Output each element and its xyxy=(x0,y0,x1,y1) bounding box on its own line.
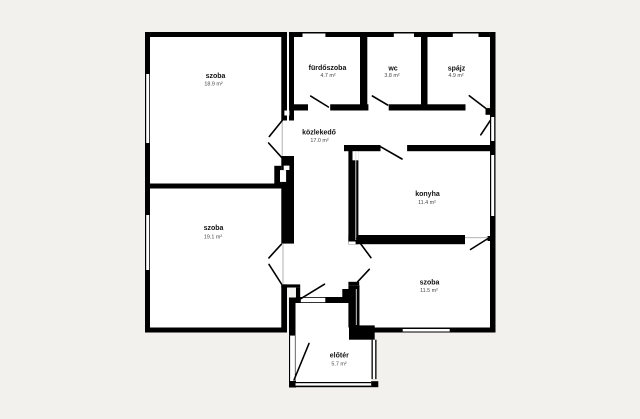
svg-text:18.9 m²: 18.9 m² xyxy=(204,81,222,87)
svg-text:3.8 m²: 3.8 m² xyxy=(384,73,399,79)
svg-text:4.9 m²: 4.9 m² xyxy=(448,73,463,79)
svg-text:4.7 m²: 4.7 m² xyxy=(320,73,335,79)
svg-text:spájz: spájz xyxy=(448,66,466,73)
svg-text:5.7 m²: 5.7 m² xyxy=(331,362,346,368)
svg-text:közlekedő: közlekedő xyxy=(302,130,336,137)
svg-text:19.1 m²: 19.1 m² xyxy=(204,235,222,241)
svg-text:fürdőszoba: fürdőszoba xyxy=(309,65,347,72)
svg-text:wc: wc xyxy=(387,66,397,73)
svg-text:11.5 m²: 11.5 m² xyxy=(420,288,438,294)
svg-text:11.4 m²: 11.4 m² xyxy=(418,200,436,206)
svg-text:konyha: konyha xyxy=(415,191,440,198)
svg-text:szoba: szoba xyxy=(206,73,226,80)
svg-text:előtér: előtér xyxy=(330,353,349,360)
svg-text:szoba: szoba xyxy=(420,280,440,287)
svg-text:szoba: szoba xyxy=(204,225,224,232)
svg-text:17.0 m²: 17.0 m² xyxy=(310,138,328,144)
